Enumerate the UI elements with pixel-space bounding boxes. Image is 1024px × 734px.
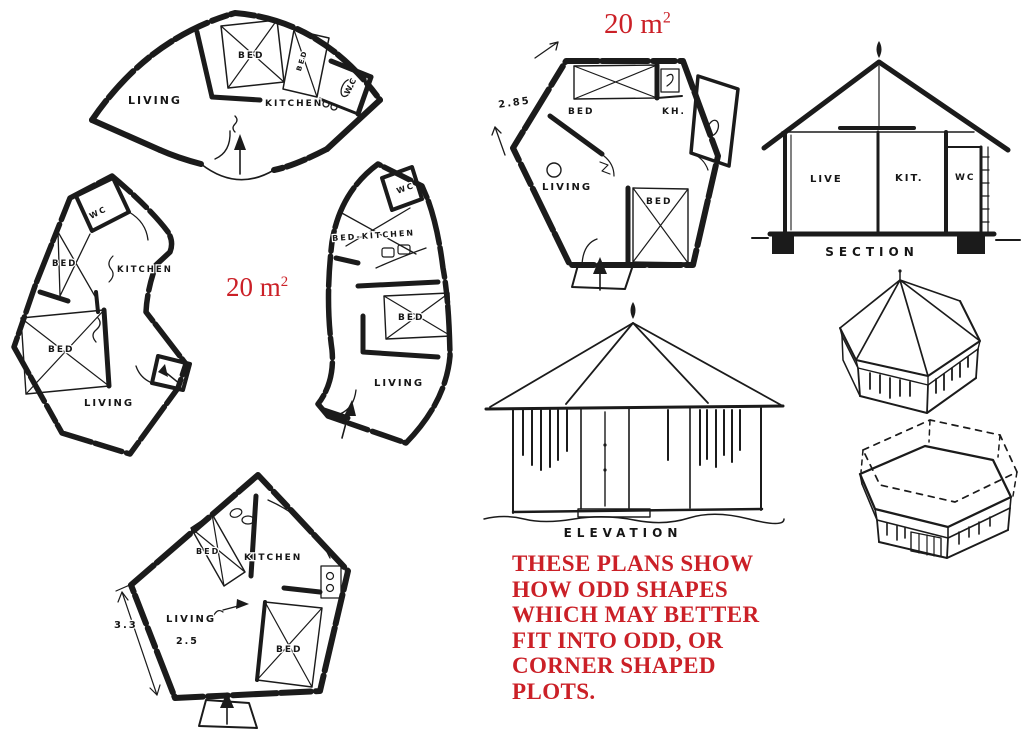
pentagon-plan-sketch: BED KITCHEN LIVING 2.5 BED 3.3 bbox=[108, 458, 373, 734]
note-line-1: THESE PLANS SHOW bbox=[512, 551, 767, 577]
pentagon-bed2-label: BED bbox=[276, 645, 302, 655]
curve-plan-sketch: WC BED-KITCHEN BED LIVING bbox=[298, 150, 483, 455]
fan-wc-label: WC bbox=[343, 75, 359, 96]
hex-roof-finial bbox=[898, 269, 901, 272]
area-left-value: 20 m bbox=[226, 272, 281, 302]
section-caption: SECTION bbox=[825, 245, 919, 259]
elevation-roof bbox=[486, 323, 783, 409]
curve-living-label: LIVING bbox=[374, 378, 424, 389]
note-line-5: CORNER SHAPED bbox=[512, 653, 767, 679]
hexagon-bed2-label: BED bbox=[646, 197, 672, 207]
fan-kitchen-label: KITCHEN bbox=[265, 99, 323, 109]
elevation-finial bbox=[631, 302, 636, 319]
door-dot bbox=[603, 468, 606, 471]
boot-plan-drawing: WC BED KITCHEN BED LIVING bbox=[0, 170, 200, 475]
pentagon-kitchen-label: KITCHEN bbox=[244, 553, 302, 563]
note-line-2: HOW ODD SHAPES bbox=[512, 577, 767, 603]
boot-bed-label: BED bbox=[52, 259, 77, 269]
fan-north-arrow bbox=[234, 134, 246, 174]
boot-bed2-label: BED bbox=[48, 345, 74, 355]
pentagon-plan-drawing: BED KITCHEN LIVING 2.5 BED 3.3 bbox=[108, 458, 373, 734]
section-live-label: LIVE bbox=[810, 174, 843, 185]
note-text-block: THESE PLANS SHOW HOW ODD SHAPES WHICH MA… bbox=[512, 551, 767, 704]
hex-flat-body bbox=[860, 446, 1011, 558]
curve-plan-drawing: WC BED-KITCHEN BED LIVING bbox=[298, 150, 483, 455]
boot-living-label: LIVING bbox=[84, 398, 134, 409]
area-label-left: 20 m2 bbox=[226, 272, 288, 303]
curve-wc-label: WC bbox=[395, 181, 416, 196]
section-finial bbox=[877, 41, 882, 58]
curve-entry-arrow bbox=[344, 400, 356, 416]
boot-plan-sketch: WC BED KITCHEN BED LIVING bbox=[0, 170, 200, 475]
hex-roof-lines bbox=[840, 271, 980, 413]
fan-bed-label: BED bbox=[238, 51, 264, 61]
section-foundation-left bbox=[772, 234, 794, 254]
sketch-page: LIVING BED BED KITCHEN WC bbox=[0, 0, 1024, 734]
hexagon-plan-drawing: BED KH. LIVING BED 2.85 bbox=[486, 36, 758, 304]
section-kit-label: KIT. bbox=[895, 173, 924, 184]
door-dot bbox=[603, 443, 606, 446]
elevation-sketch: ELEVATION bbox=[478, 295, 793, 540]
hex-roof-sketch bbox=[820, 268, 990, 416]
hex-roof-drawing bbox=[820, 268, 990, 416]
note-line-6: PLOTS. bbox=[512, 679, 767, 705]
hex-flat-drawing bbox=[835, 410, 1015, 560]
pentagon-dim-side: 3.3 bbox=[114, 620, 138, 631]
hexagon-plan-sketch: BED KH. LIVING BED 2.85 bbox=[486, 36, 758, 304]
note-line-3: WHICH MAY BETTER bbox=[512, 602, 767, 628]
hexagon-bed-label: BED bbox=[568, 107, 594, 117]
elevation-walls bbox=[484, 408, 784, 524]
hexagon-walls bbox=[513, 61, 738, 289]
pentagon-sketch-arrow bbox=[236, 599, 249, 609]
area-left-sup: 2 bbox=[281, 274, 288, 290]
hexagon-kitchen-label: KH. bbox=[662, 107, 686, 117]
boot-entry-arrow bbox=[158, 364, 168, 377]
area-top-sup: 2 bbox=[663, 9, 671, 26]
pentagon-bed-label: BED bbox=[196, 547, 220, 556]
elevation-caption: ELEVATION bbox=[564, 526, 683, 540]
boot-kitchen-label: KITCHEN bbox=[117, 265, 173, 275]
curve-bedkitchen-label: BED-KITCHEN bbox=[332, 228, 415, 243]
fan-living-label: LIVING bbox=[128, 94, 182, 107]
boot-wc-label: WC bbox=[88, 204, 109, 221]
pentagon-dim-width: 2.5 bbox=[176, 636, 199, 647]
section-structure bbox=[752, 62, 1020, 240]
section-drawing: LIVE KIT. WC SECTION bbox=[752, 32, 1022, 267]
section-wc-label: WC bbox=[955, 173, 976, 183]
hexagon-living-label: LIVING bbox=[542, 182, 592, 193]
pentagon-living-label: LIVING bbox=[166, 614, 216, 625]
elevation-drawing: ELEVATION bbox=[478, 295, 793, 540]
section-sketch: LIVE KIT. WC SECTION bbox=[752, 32, 1022, 267]
hexagon-north-arrow bbox=[593, 257, 607, 290]
hexagon-dim-side: 2.85 bbox=[498, 95, 532, 110]
curve-bed-label: BED bbox=[398, 313, 424, 323]
hex-flat-sketch bbox=[835, 410, 1015, 560]
section-foundation-right bbox=[957, 234, 985, 254]
note-line-4: FIT INTO ODD, OR bbox=[512, 628, 767, 654]
